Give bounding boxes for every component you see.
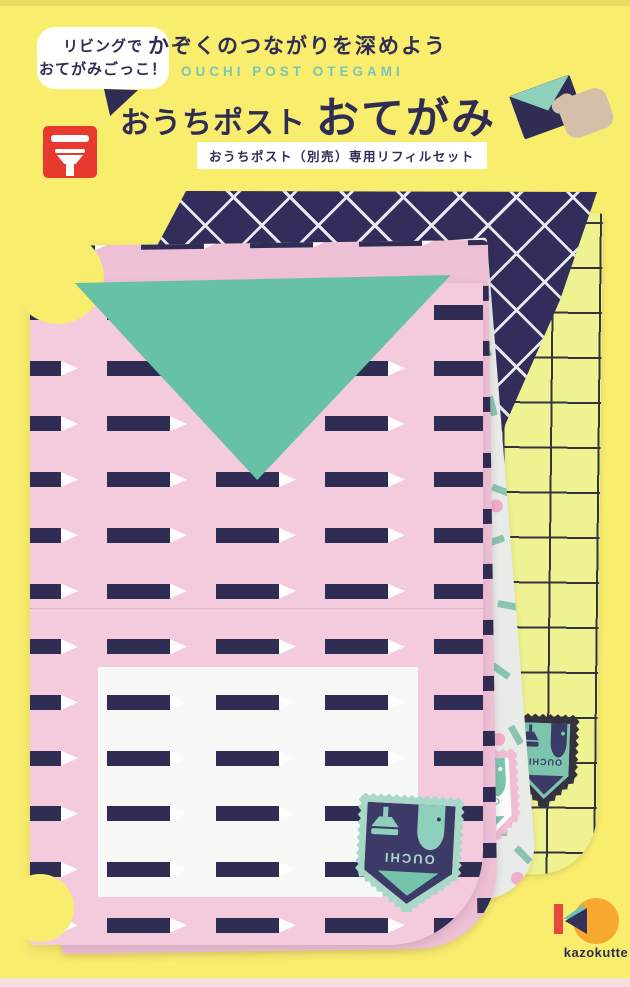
mailbox-icon (43, 126, 97, 178)
corner-notch-bottom-left (6, 874, 74, 942)
speech-bubble-line2: おてがみごっこ！ (39, 58, 167, 81)
logo-red-bar (554, 904, 563, 934)
product-title-part2: おてがみ (316, 84, 496, 146)
postal-mark-bar (55, 149, 85, 153)
kazokutte-logo: kazokutte (546, 896, 630, 966)
product-title: おうちポスト おてがみ (120, 84, 496, 146)
speech-bubble-line1: リビングで (63, 35, 143, 58)
logo-wordmark: kazokutte (546, 945, 630, 960)
photo-edge-bottom (0, 978, 630, 987)
refill-set-label: おうちポスト（別売）専用リフィルセット (197, 142, 487, 169)
product-artwork: OUCHI OUCHI OUCHI リビングで おてがみごっこ！ かぞくのつなが… (0, 0, 630, 987)
fold-line (30, 608, 483, 611)
photo-edge-top (0, 0, 630, 6)
corner-notch-top-left (12, 232, 104, 324)
hand-with-envelope-icon (505, 70, 630, 155)
mailbox-slot (51, 135, 89, 142)
postal-mark-stem (66, 163, 74, 176)
tagline: かぞくのつながりを深めよう (148, 30, 447, 60)
product-title-part1: おうちポスト (120, 98, 306, 142)
subtitle-english: OUCHI POST OTEGAMI (181, 64, 404, 79)
